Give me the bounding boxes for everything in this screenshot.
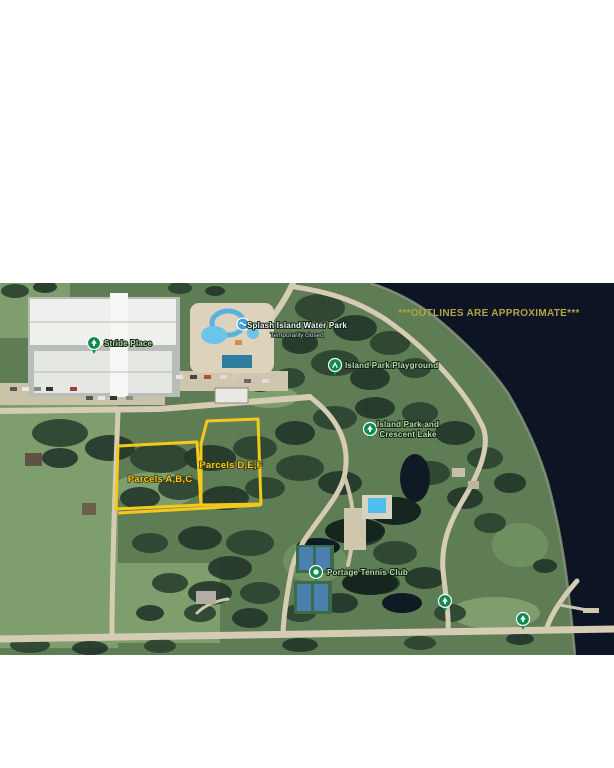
outlines-disclaimer: ***OUTLINES ARE APPROXIMATE***	[398, 308, 579, 319]
aerial-map-canvas: Parcels A,B,C Parcels D,E,F	[0, 283, 614, 655]
portage-tennis-label: Portage Tennis Club	[327, 568, 408, 577]
island-park-label-line1: Island Park and	[377, 420, 439, 429]
photo-page: Parcels A,B,C Parcels D,E,F	[0, 0, 614, 768]
island-park-label-line2: Crescent Lake	[379, 430, 437, 439]
stride-place-label: Stride Place	[104, 339, 153, 348]
island-park-playground-label: Island Park Playground	[345, 361, 438, 370]
satellite-map: Parcels A,B,C Parcels D,E,F	[0, 283, 614, 655]
outdoor-pool	[362, 495, 392, 519]
parcel-def-label: Parcels D,E,F	[199, 460, 262, 471]
splash-island-status: Temporarily closed	[270, 332, 324, 339]
splash-island-label: Splash Island Water Park	[247, 321, 347, 330]
parcel-abc-label: Parcels A,B,C	[128, 474, 193, 485]
splash-island-waterpark	[190, 303, 274, 373]
boat-dock	[583, 608, 599, 613]
